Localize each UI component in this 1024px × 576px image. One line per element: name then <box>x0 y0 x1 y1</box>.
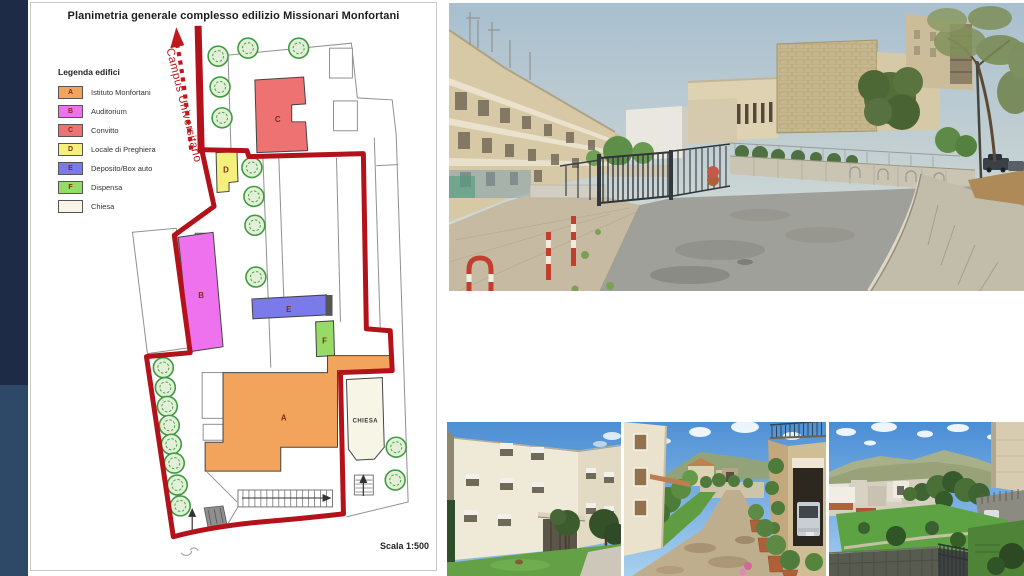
street-view-entrance-photo <box>449 3 1024 291</box>
legend-label: Convitto <box>91 126 119 135</box>
legend-swatch: C <box>58 124 83 137</box>
legend-label: Auditorium <box>91 107 127 116</box>
legend-label: Locale di Preghiera <box>91 145 156 154</box>
label-d: D <box>223 166 229 175</box>
legend-swatch <box>58 200 83 213</box>
monfortani-building <box>688 78 778 144</box>
legend-item-auditorium: B Auditorium <box>58 105 156 118</box>
legend-label: Chiesa <box>91 202 114 211</box>
garden-alley-photo <box>624 422 826 576</box>
garden-overview-photo <box>829 422 1024 576</box>
plan-title: Planimetria generale complesso edilizio … <box>31 10 436 22</box>
legend-item-deposito: E Deposito/Box auto <box>58 162 156 175</box>
legend-swatch: F <box>58 181 83 194</box>
legend-item-istituto: A Istituto Monfortani <box>58 86 156 99</box>
left-navy-strip-bottom <box>0 385 28 576</box>
left-navy-strip-top <box>0 0 28 385</box>
label-f: F <box>322 337 327 346</box>
legend-swatch: E <box>58 162 83 175</box>
pine-tree <box>858 67 923 130</box>
label-b: B <box>198 291 204 300</box>
building-e-dock <box>326 295 333 316</box>
label-e: E <box>286 305 291 314</box>
label-c: C <box>275 115 281 124</box>
legend-item-dispensa: F Dispensa <box>58 181 156 194</box>
legend-label: Deposito/Box auto <box>91 164 152 173</box>
car-in-garage <box>797 502 820 536</box>
right-building <box>991 422 1024 492</box>
label-chiesa: CHIESA <box>353 418 379 424</box>
legend-heading: Legenda edifici <box>58 67 156 77</box>
legend-item-preghiera: D Locale di Preghiera <box>58 143 156 156</box>
legend-label: Dispensa <box>91 183 122 192</box>
plan-legend: Legenda edifici A Istituto Monfortani B … <box>58 67 156 219</box>
label-a: A <box>281 413 287 422</box>
legend-item-convitto: C Convitto <box>58 124 156 137</box>
scale-label: Scala 1:500 <box>339 541 429 551</box>
hedge <box>447 500 455 562</box>
legend-item-chiesa: Chiesa <box>58 200 156 213</box>
access-road-line <box>198 29 201 149</box>
legend-swatch: D <box>58 143 83 156</box>
north-symbol <box>181 548 198 555</box>
slide-page: C D B E F A CHIESA Campus Universitario … <box>0 0 1024 576</box>
building-c <box>255 77 308 153</box>
legend-swatch: B <box>58 105 83 118</box>
legend-swatch: A <box>58 86 83 99</box>
site-plan-panel: C D B E F A CHIESA Campus Universitario … <box>30 2 437 571</box>
legend-label: Istituto Monfortani <box>91 88 151 97</box>
institute-building-photo <box>447 422 621 576</box>
